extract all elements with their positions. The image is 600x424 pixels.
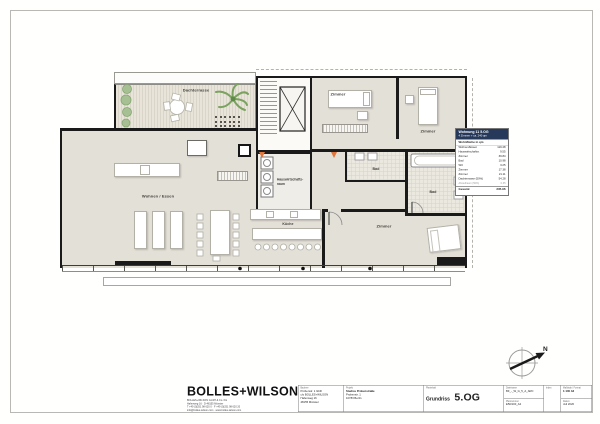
- area-label: Wohnen/Essen: [459, 146, 478, 149]
- terrace-parapet: [114, 72, 256, 84]
- plan-floor: 5.OG: [454, 392, 480, 404]
- kitchen-bar-island: [252, 228, 322, 240]
- scale-date-cell: Maßstab / Format 1:100 A2 Datum Juli 202…: [561, 385, 592, 412]
- area-total-row: Gesamt 235.96: [456, 186, 508, 192]
- total-value: 235.96: [496, 188, 505, 191]
- area-value: 119.48: [497, 146, 505, 149]
- apartment-info-header: Wohnung 11 5.OG 4 Zimmer + ca. 240 qm: [456, 129, 508, 140]
- plan-type: Grundriss: [426, 397, 450, 403]
- scale-cell: Maßstab / Format 1:100 A2: [561, 386, 592, 399]
- stairs: [260, 81, 277, 137]
- apartment-subtitle: 4 Zimmer + ca. 240 qm: [459, 135, 506, 138]
- wall-bath1-south: [345, 180, 407, 182]
- bath1-floor: [347, 151, 405, 180]
- area-row: Abstellraum (50%)0.35: [456, 181, 508, 185]
- kitchen-sink: [140, 165, 150, 175]
- wardrobe-top-middle: [322, 124, 368, 133]
- label-bath1: Bad: [373, 167, 380, 171]
- project-cell: Projekt Studios Probenstraße Probenstr. …: [344, 385, 424, 412]
- kitchen-tall-cabinet: [187, 140, 207, 156]
- date-label: Datum: [563, 400, 590, 403]
- kitchen-sink-2: [290, 211, 298, 218]
- kitchen-counter-2: [250, 209, 321, 220]
- area-value: 21.11: [499, 173, 506, 176]
- area-label: Dachterrasse (50%): [459, 177, 483, 180]
- date-cell: Datum Juli 2020: [561, 398, 592, 411]
- nightstand-top-middle: [357, 111, 368, 120]
- apartment-info-inner: Wohnung 11 5.OG 4 Zimmer + ca. 240 qm Wo…: [456, 129, 508, 192]
- scale-value: 1:100 A2: [563, 390, 590, 394]
- title-block-inner: BOLLES+WILSON BOLLES+WILSON GmbH & Co. K…: [186, 385, 592, 412]
- area-value: 39.84: [499, 155, 506, 158]
- cooktop: [266, 211, 274, 218]
- door-marker-1: [259, 152, 265, 158]
- plan-content-label: Planinhalt: [426, 387, 502, 390]
- date-value: Juli 2020: [563, 403, 590, 407]
- index-cell: Index: [544, 385, 561, 412]
- wall-bath1-west: [345, 151, 347, 181]
- label-kitchen: Küche: [282, 222, 293, 226]
- area-label: Zimmer: [459, 155, 468, 158]
- office-line: info@bolles-wilson.com · www.bolles-wils…: [187, 409, 294, 412]
- title-block: BOLLES+WILSON BOLLES+WILSON GmbH & Co. K…: [186, 385, 592, 412]
- label-utility-line2: raum: [277, 182, 303, 186]
- plan-number-value: E50/100_A2: [506, 403, 542, 407]
- total-label: Gesamt: [459, 188, 470, 191]
- index-label: Index: [546, 387, 559, 390]
- wall-bath2-south: [405, 213, 467, 216]
- wall-bath2-west: [405, 151, 408, 215]
- area-label: Zimmer: [459, 173, 468, 176]
- area-value: 9.55: [500, 151, 505, 154]
- sofa-1: [134, 211, 147, 249]
- wall-bedroom3-north-b: [341, 209, 407, 212]
- kitchen-island-hatched: [217, 171, 248, 181]
- bed-bottom-right: [427, 224, 462, 253]
- area-value: 3.25: [500, 164, 505, 167]
- file-label: Dateiname: [506, 387, 542, 390]
- client-label: Bauherr: [301, 387, 342, 390]
- file-cell: Dateiname BF_-_W_G_5_A_ARC Plannummer E5…: [504, 385, 544, 412]
- wall-bedroom3-west: [322, 209, 325, 268]
- area-value: 54.28: [499, 177, 506, 180]
- pillow-bottom-right: [430, 230, 441, 253]
- pillow-top-middle: [363, 92, 370, 106]
- label-bedroom3: Zimmer: [376, 224, 391, 229]
- area-label: Abstellraum (50%): [459, 182, 480, 185]
- file-value: BF_-_W_G_5_A_ARC: [506, 390, 542, 394]
- area-label: Hauswirtschaftsr.: [459, 151, 480, 154]
- area-label: Zimmer: [459, 169, 468, 172]
- chimney-shaft: [238, 144, 251, 157]
- area-value: 0.35: [501, 182, 506, 185]
- wall-bedroom3-north-a: [322, 209, 328, 212]
- label-bath2: Bad: [430, 190, 437, 194]
- label-living: Wohnen / Essen: [142, 194, 174, 199]
- area-row: Dachterrasse (50%)54.28: [456, 177, 508, 181]
- dimension-line-top: [256, 69, 467, 70]
- apartment-info-card: Wohnung 11 5.OG 4 Zimmer + ca. 240 qm Wo…: [455, 128, 509, 196]
- file-name-cell: Dateiname BF_-_W_G_5_A_ARC: [504, 386, 544, 399]
- facade-glass-line: [62, 265, 465, 266]
- side-table-top-right: [405, 95, 414, 104]
- label-terrace: Dachterrasse: [183, 88, 210, 93]
- drawing-sheet: N Dachterrasse Zimmer Zimmer Wohnen / Es…: [0, 0, 600, 424]
- client-cell: Bauherr Probenstr. 1 GbR c/o BOLLES+WILS…: [298, 385, 344, 412]
- architect-logo-block: BOLLES+WILSON BOLLES+WILSON GmbH & Co. K…: [186, 385, 298, 412]
- plan-content-cell: Planinhalt Grundriss 5.OG: [424, 385, 504, 412]
- pillow-top-right: [420, 89, 436, 95]
- architect-address: BOLLES+WILSON GmbH & Co. KG Hafenweg 16 …: [187, 399, 294, 412]
- area-value: 17.38: [499, 169, 506, 172]
- wall-bedrooms-divider: [396, 78, 399, 139]
- sofa-2: [152, 211, 165, 249]
- facade-outer-line: [62, 271, 465, 272]
- sofa-3: [170, 211, 183, 249]
- plan-number-cell: Plannummer E50/100_A2: [504, 398, 544, 411]
- dining-table: [210, 210, 230, 255]
- area-label: Bad: [459, 160, 464, 163]
- architect-logo: BOLLES+WILSON: [187, 386, 294, 399]
- balcony-outline: [103, 277, 451, 286]
- client-line: 48155 Münster: [301, 401, 342, 405]
- door-marker-2: [331, 152, 337, 158]
- label-bedroom2: Zimmer: [420, 129, 435, 134]
- client-lines: Probenstr. 1 GbR c/o BOLLES+WILSON Hafen…: [301, 390, 342, 405]
- area-label: WC: [459, 164, 464, 167]
- project-label: Projekt: [346, 387, 422, 390]
- scale-label: Maßstab / Format: [563, 387, 590, 390]
- plan-number-label: Plannummer: [506, 400, 542, 403]
- apartment-title: Wohnung 11 5.OG: [459, 131, 506, 135]
- label-utility-room: Hauswirtschafts- raum: [277, 178, 303, 187]
- wall-terrace-south: [60, 128, 258, 131]
- area-value: 10.98: [499, 160, 506, 163]
- project-addr2: 10783 Berlin: [346, 397, 422, 401]
- label-bedroom1: Zimmer: [330, 92, 345, 97]
